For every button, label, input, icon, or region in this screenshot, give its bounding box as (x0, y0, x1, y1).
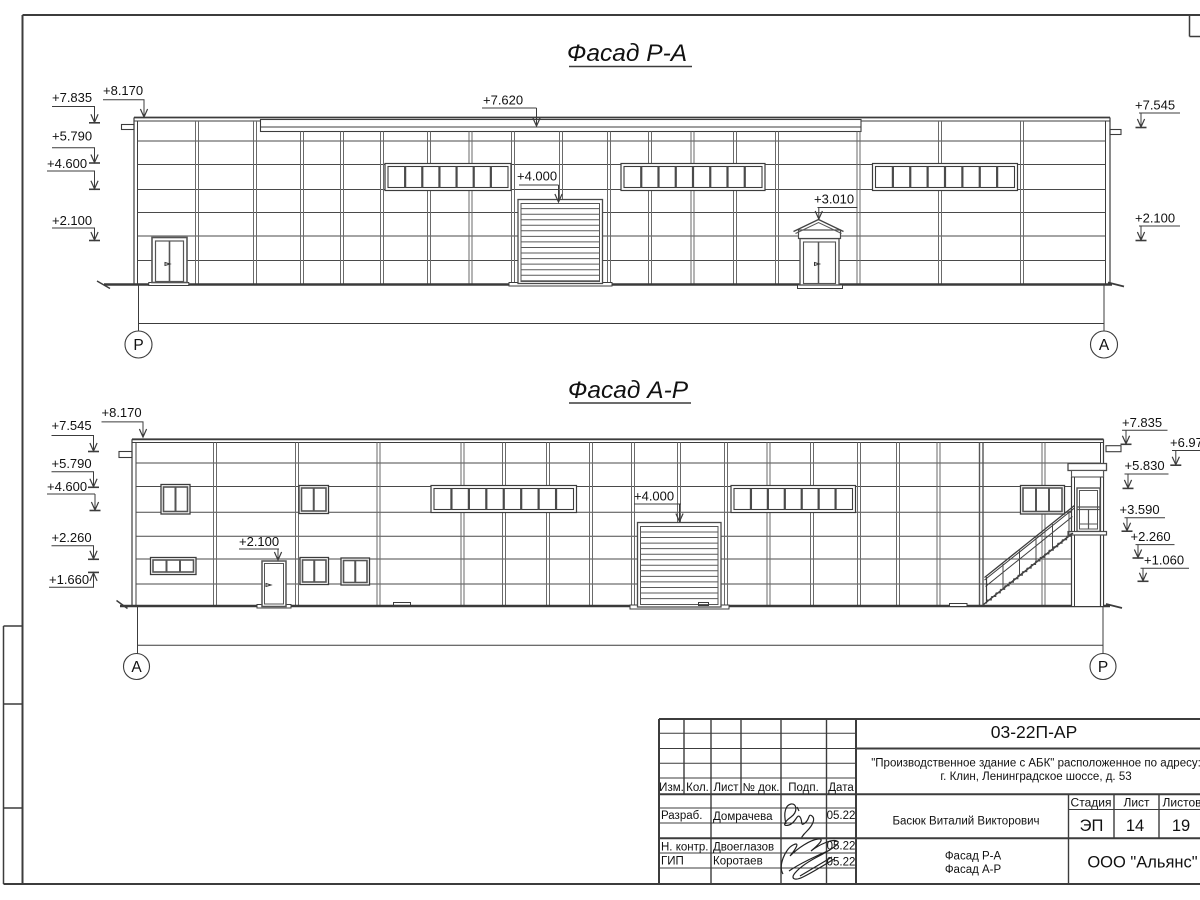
svg-text:Разраб.: Разраб. (661, 810, 702, 822)
svg-text:+8.170: +8.170 (103, 83, 143, 98)
svg-text:03-22П-АР: 03-22П-АР (991, 722, 1078, 742)
svg-text:+4.600: +4.600 (47, 479, 87, 494)
svg-text:05.22: 05.22 (827, 841, 856, 853)
svg-text:+2.100: +2.100 (239, 534, 279, 549)
svg-text:14: 14 (1126, 817, 1144, 835)
svg-text:+2.100: +2.100 (1135, 211, 1175, 226)
svg-text:+1.060: +1.060 (1144, 553, 1184, 568)
svg-text:Подп.: Подп. (788, 782, 819, 794)
svg-text:+2.260: +2.260 (52, 530, 92, 545)
svg-text:№ док.: № док. (743, 782, 780, 794)
svg-text:Р: Р (133, 337, 143, 354)
svg-text:19: 19 (1172, 817, 1190, 835)
svg-text:Домрачева: Домрачева (713, 811, 773, 823)
svg-text:г. Клин, Ленинградское шоссе,: г. Клин, Ленинградское шоссе, д. 53 (940, 771, 1131, 783)
svg-text:Фасад А-Р: Фасад А-Р (945, 864, 1002, 876)
svg-text:+6.970: +6.970 (1170, 435, 1200, 450)
svg-text:+2.260: +2.260 (1131, 529, 1171, 544)
svg-text:+5.830: +5.830 (1125, 458, 1165, 473)
svg-text:05.22: 05.22 (827, 810, 856, 822)
svg-text:+7.835: +7.835 (52, 90, 92, 105)
svg-text:Коротаев: Коротаев (713, 856, 763, 868)
svg-text:+7.545: +7.545 (1135, 98, 1175, 113)
svg-text:Стадия: Стадия (1071, 796, 1112, 810)
svg-text:ГИП: ГИП (661, 856, 684, 868)
svg-text:Фасад Р-А: Фасад Р-А (567, 40, 687, 67)
svg-text:Басюк Виталий Викторович: Басюк Виталий Викторович (892, 816, 1039, 828)
svg-text:"Производственное здание с АБК: "Производственное здание с АБК" располож… (871, 758, 1200, 770)
svg-text:+5.790: +5.790 (52, 129, 92, 144)
svg-text:+8.170: +8.170 (102, 405, 142, 420)
svg-text:+4.000: +4.000 (517, 169, 557, 184)
svg-text:Фасад А-Р: Фасад А-Р (568, 377, 689, 404)
svg-text:+5.790: +5.790 (52, 456, 92, 471)
svg-text:Дата: Дата (828, 782, 854, 794)
svg-text:ООО "Альянс": ООО "Альянс" (1087, 854, 1197, 872)
svg-text:Кол.: Кол. (686, 782, 709, 794)
svg-text:Двоеглазов: Двоеглазов (713, 842, 774, 854)
svg-text:Лист: Лист (1123, 796, 1150, 810)
svg-text:+3.590: +3.590 (1120, 502, 1160, 517)
svg-text:+7.620: +7.620 (483, 93, 523, 108)
svg-text:ЭП: ЭП (1080, 817, 1104, 835)
svg-text:+4.000: +4.000 (634, 489, 674, 504)
svg-text:Лист: Лист (714, 782, 740, 794)
svg-text:Н. контр.: Н. контр. (661, 842, 708, 854)
svg-text:Фасад Р-А: Фасад Р-А (945, 851, 1002, 863)
svg-text:+7.545: +7.545 (52, 418, 92, 433)
svg-text:А: А (131, 659, 142, 676)
svg-text:Р: Р (1098, 659, 1108, 676)
svg-text:А: А (1099, 337, 1110, 354)
svg-text:+2.100: +2.100 (52, 213, 92, 228)
svg-text:+4.600: +4.600 (47, 156, 87, 171)
svg-text:+1.660: +1.660 (49, 572, 89, 587)
svg-text:+3.010: +3.010 (814, 192, 854, 207)
svg-text:+7.835: +7.835 (1122, 415, 1162, 430)
svg-text:Изм.: Изм. (659, 782, 684, 794)
svg-text:Листов: Листов (1163, 796, 1200, 810)
